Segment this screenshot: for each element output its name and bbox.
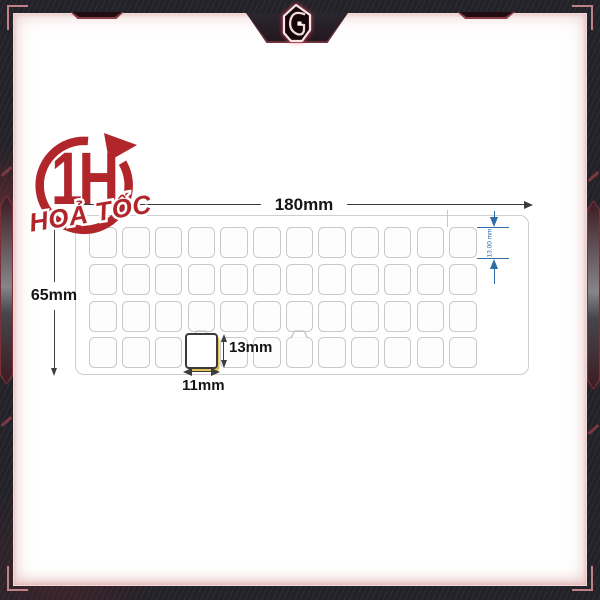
key-cell [122,264,150,295]
key-cell [286,301,314,332]
key-cell [155,337,183,368]
key-cell [318,227,346,258]
dimension-row-height-detail: 13.00 mm [477,211,509,285]
key-cell [89,264,117,295]
key-cell [286,227,314,258]
key-cell [89,337,117,368]
key-cell [384,301,412,332]
key-width-label: 11mm [182,377,222,394]
sheet-width-label: 180mm [261,195,348,215]
arrow-right-icon [524,201,533,209]
dimension-key-height [219,334,228,368]
key-cell [188,227,216,258]
side-hexagon-right [587,200,600,390]
frame-notch-left-fill [72,12,122,17]
dimension-line [192,371,211,372]
key-cell [286,337,314,368]
key-cell [351,337,379,368]
key-cell [351,264,379,295]
arrow-down-icon [490,217,498,227]
key-cell [220,301,248,332]
key-cell [122,337,150,368]
key-cell [253,264,281,295]
key-cell [417,264,445,295]
key-cell [220,227,248,258]
dimension-line [54,310,55,368]
side-hexagon-left [0,195,13,385]
arrow-right-icon [211,368,220,376]
key-height-label: 13mm [229,339,272,356]
key-cell [253,301,281,332]
side-accent-left-bottom [1,416,13,427]
dimension-line [223,342,224,360]
key-cell [155,264,183,295]
side-hexagon-left-fill [1,197,12,384]
key-cell [318,301,346,332]
express-1h-badge: 1H HOẢ TỐC [25,124,183,252]
key-cell [449,337,477,368]
side-hexagon-right-fill [588,202,599,389]
key-cell [449,301,477,332]
corner-bracket-top-left [7,5,28,30]
key-cell [351,227,379,258]
arrow-left-icon [183,368,192,376]
sheet-height-label: 65mm [31,282,77,310]
key-cell [188,301,216,332]
key-cell [384,337,412,368]
corner-bracket-bottom-right [572,566,593,591]
key-cell [449,264,477,295]
key-cell [122,301,150,332]
key-cell [318,337,346,368]
arrow-down-icon [51,368,57,376]
promo-frame: 180mm 65mm 13mm 11mm 13.00 mm [0,0,600,600]
key-cell [351,301,379,332]
highlighted-key-cell [185,333,218,369]
key-cell [449,227,477,258]
key-cell [384,264,412,295]
key-cell [253,227,281,258]
extension-line [447,210,448,227]
side-accent-right-bottom [588,424,600,435]
key-cell [155,301,183,332]
side-accent-left-top [1,166,13,177]
key-cell [417,337,445,368]
corner-bracket-bottom-left [7,566,28,591]
arrow-up-icon [490,259,498,269]
g-gaming-emblem-icon [281,4,313,44]
key-cell [318,264,346,295]
frame-notch-left [70,12,124,19]
key-cell [220,264,248,295]
key-cell [417,301,445,332]
key-cell [384,227,412,258]
key-cell [417,227,445,258]
arrow-up-icon [221,334,227,342]
alignment-notch-fill [292,332,307,338]
side-accent-right-top [588,171,600,182]
arrow-down-icon [221,360,227,368]
frame-notch-right-fill [459,12,513,17]
row-height-note: 13.00 mm [487,229,494,258]
key-cell [286,264,314,295]
frame-notch-right [457,12,515,19]
dimension-line [494,269,495,284]
dimension-key-width [183,367,220,376]
key-cell [89,301,117,332]
dimension-line [347,204,524,205]
key-cell [188,264,216,295]
corner-bracket-top-right [572,5,593,30]
